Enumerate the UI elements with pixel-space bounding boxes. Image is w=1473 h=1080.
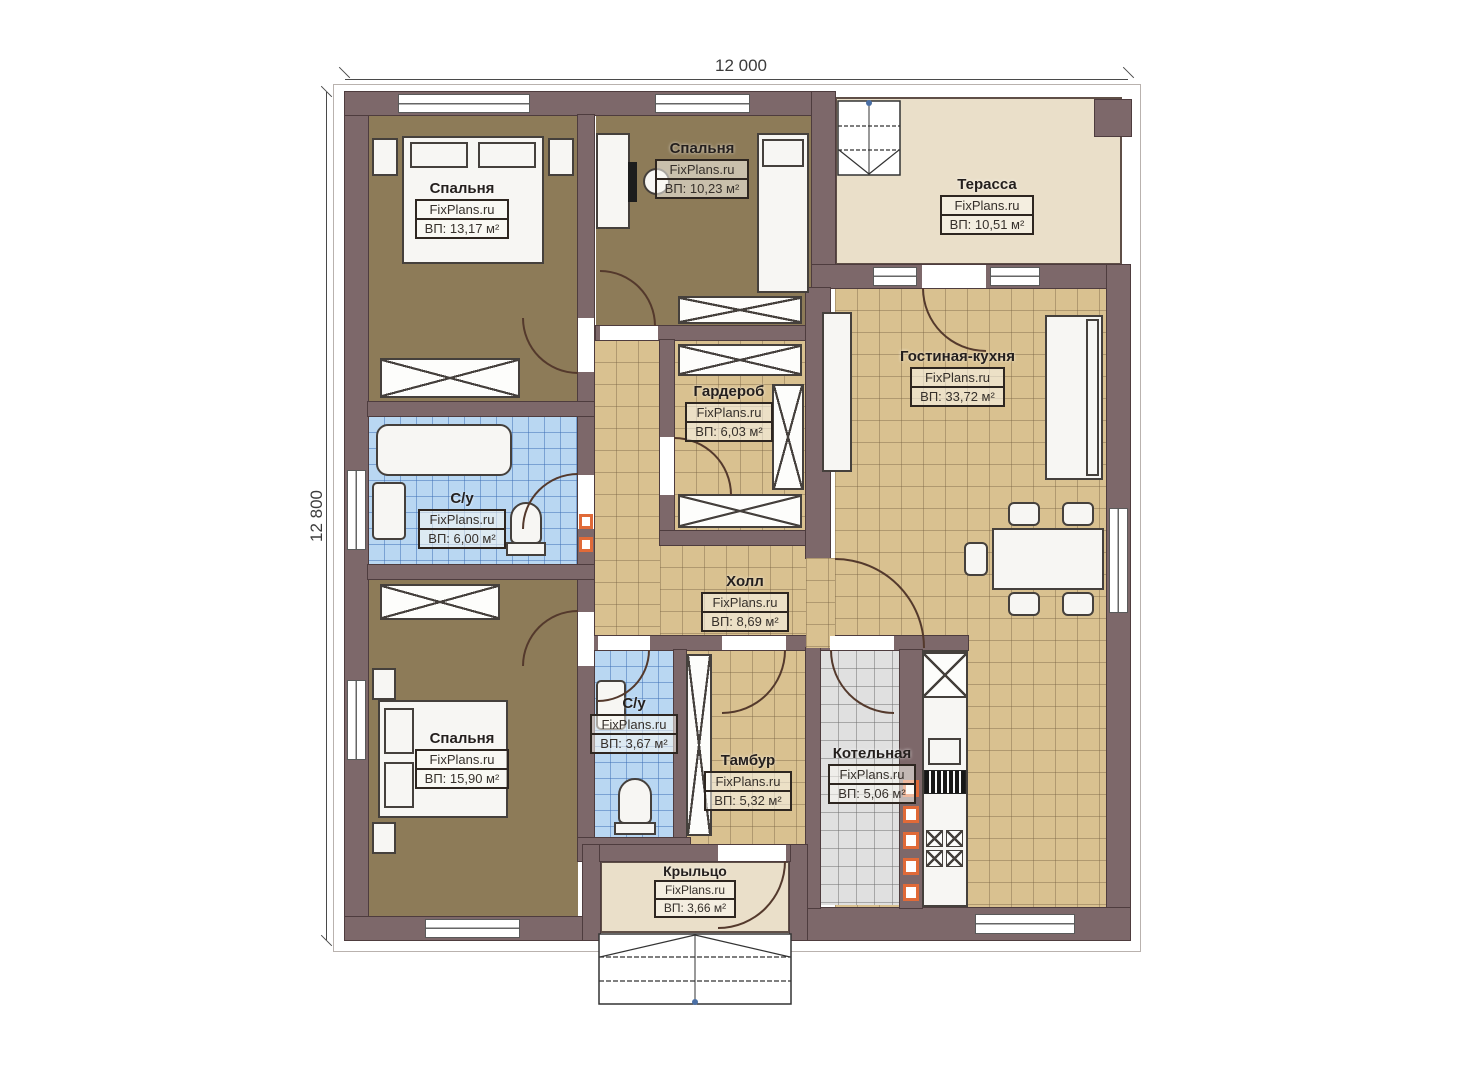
room-area: ВП: 8,69 м² bbox=[703, 613, 786, 630]
room-name: Спальня bbox=[430, 730, 495, 747]
watermark: FixPlans.ru bbox=[830, 766, 913, 785]
wall-bath1-bedroom3 bbox=[368, 565, 594, 579]
room-info-box: FixPlans.ru ВП: 10,23 м² bbox=[655, 159, 750, 199]
door-opening-bedroom-3 bbox=[578, 612, 594, 666]
room-info-box: FixPlans.ru ВП: 33,72 м² bbox=[910, 367, 1005, 407]
desk bbox=[596, 133, 630, 229]
sofa-backrest bbox=[1086, 319, 1099, 476]
chair bbox=[1008, 592, 1040, 616]
toilet-tank bbox=[614, 822, 656, 835]
room-name: Тамбур bbox=[721, 752, 775, 769]
room-name: С/у bbox=[450, 490, 473, 507]
window-terrace-right bbox=[990, 267, 1040, 286]
room-label-living-kitchen: Гостиная-кухня FixPlans.ru ВП: 33,72 м² bbox=[875, 348, 1040, 407]
room-label-bathroom-2: С/у FixPlans.ru ВП: 3,67 м² bbox=[588, 695, 680, 754]
wardrobe-cabinet bbox=[380, 358, 520, 398]
floor-plan-canvas: Спальня FixPlans.ru ВП: 13,17 м² Спальня… bbox=[0, 0, 1473, 1080]
room-label-terrace: Терасса FixPlans.ru ВП: 10,51 м² bbox=[915, 176, 1059, 235]
vent-block bbox=[903, 858, 919, 875]
pillow bbox=[410, 142, 468, 168]
door-opening-bathroom-2 bbox=[598, 636, 650, 650]
vent-block bbox=[903, 884, 919, 901]
nightstand bbox=[548, 138, 574, 176]
room-name: Терасса bbox=[957, 176, 1016, 193]
tv-cabinet bbox=[822, 312, 852, 472]
watermark: FixPlans.ru bbox=[420, 511, 503, 530]
window-bedroom-3-left bbox=[347, 680, 366, 760]
room-info-box: FixPlans.ru ВП: 3,67 м² bbox=[590, 714, 677, 754]
window-living-right bbox=[1109, 508, 1128, 613]
window-bedroom-1 bbox=[398, 94, 530, 113]
room-info-box: FixPlans.ru ВП: 15,90 м² bbox=[415, 749, 510, 789]
porch-steps bbox=[598, 933, 792, 1005]
room-area: ВП: 5,32 м² bbox=[706, 792, 789, 809]
room-label-tambour: Тамбур FixPlans.ru ВП: 5,32 м² bbox=[688, 752, 808, 811]
window-terrace-left bbox=[873, 267, 917, 286]
wall-bedroom2-terrace bbox=[812, 92, 835, 288]
room-name: Крыльцо bbox=[663, 863, 727, 879]
dimension-value-top: 12 000 bbox=[686, 56, 796, 76]
watermark: FixPlans.ru bbox=[942, 197, 1033, 216]
wardrobe-cabinet bbox=[678, 296, 802, 324]
bathtub bbox=[376, 424, 512, 476]
watermark: FixPlans.ru bbox=[912, 369, 1003, 388]
room-label-bedroom-1: Спальня FixPlans.ru ВП: 13,17 м² bbox=[388, 180, 536, 239]
room-area: ВП: 6,03 м² bbox=[687, 423, 770, 440]
dining-table bbox=[992, 528, 1104, 590]
stove-burner bbox=[946, 850, 963, 867]
room-info-box: FixPlans.ru ВП: 3,66 м² bbox=[654, 880, 736, 918]
stove-burner bbox=[926, 830, 943, 847]
nightstand bbox=[372, 138, 398, 176]
nightstand bbox=[372, 822, 396, 854]
room-area: ВП: 6,00 м² bbox=[420, 530, 503, 547]
door-opening-bedroom-1 bbox=[578, 318, 594, 372]
room-area: ВП: 15,90 м² bbox=[417, 770, 508, 787]
room-info-box: FixPlans.ru ВП: 13,17 м² bbox=[415, 199, 510, 239]
room-name: Спальня bbox=[430, 180, 495, 197]
door-opening-porch bbox=[718, 845, 786, 861]
room-name: Холл bbox=[726, 573, 764, 590]
wardrobe-cabinet bbox=[678, 494, 802, 528]
chair bbox=[1008, 502, 1040, 526]
wardrobe-cabinet bbox=[380, 584, 500, 620]
dimension-value-left: 12 800 bbox=[307, 461, 327, 571]
nightstand bbox=[372, 668, 396, 700]
room-area: ВП: 5,06 м² bbox=[830, 785, 913, 802]
room-area: ВП: 10,51 м² bbox=[942, 216, 1033, 233]
terrace-steps bbox=[837, 100, 901, 176]
watermark: FixPlans.ru bbox=[703, 594, 786, 613]
stove-burner bbox=[946, 830, 963, 847]
pillow bbox=[478, 142, 536, 168]
vent-block bbox=[579, 537, 593, 552]
stove-burner bbox=[926, 850, 943, 867]
room-label-hall: Холл FixPlans.ru ВП: 8,69 м² bbox=[665, 573, 825, 632]
chair bbox=[964, 542, 988, 576]
watermark: FixPlans.ru bbox=[417, 751, 508, 770]
room-info-box: FixPlans.ru ВП: 10,51 м² bbox=[940, 195, 1035, 235]
door-opening-tambour bbox=[722, 636, 786, 650]
room-area: ВП: 10,23 м² bbox=[657, 180, 748, 197]
room-area: ВП: 3,67 м² bbox=[592, 735, 675, 752]
kitchen-sink bbox=[928, 738, 961, 765]
room-area: ВП: 3,66 м² bbox=[656, 900, 734, 916]
room-label-wardrobe: Гардероб FixPlans.ru ВП: 6,03 м² bbox=[660, 383, 798, 442]
room-info-box: FixPlans.ru ВП: 6,03 м² bbox=[685, 402, 772, 442]
room-label-bedroom-3: Спальня FixPlans.ru ВП: 15,90 м² bbox=[388, 730, 536, 789]
room-name: Гардероб bbox=[694, 383, 765, 400]
room-name: Спальня bbox=[670, 140, 735, 157]
wall-bedroom1-bath1 bbox=[368, 402, 594, 416]
watermark: FixPlans.ru bbox=[687, 404, 770, 423]
door-opening-bedroom-2 bbox=[600, 326, 658, 340]
room-label-bedroom-2: Спальня FixPlans.ru ВП: 10,23 м² bbox=[630, 140, 774, 199]
wardrobe-cabinet bbox=[678, 344, 802, 376]
watermark: FixPlans.ru bbox=[657, 161, 748, 180]
vent-block bbox=[579, 514, 593, 529]
room-name: Гостиная-кухня bbox=[900, 348, 1015, 365]
room-info-box: FixPlans.ru ВП: 6,00 м² bbox=[418, 509, 505, 549]
vent-block bbox=[903, 832, 919, 849]
door-opening-wardrobe bbox=[660, 437, 674, 495]
window-bedroom-2 bbox=[655, 94, 750, 113]
room-label-porch: Крыльцо FixPlans.ru ВП: 3,66 м² bbox=[625, 863, 765, 918]
window-bedroom-3-bottom bbox=[425, 919, 520, 938]
room-label-bathroom-1: С/у FixPlans.ru ВП: 6,00 м² bbox=[398, 490, 526, 549]
chair bbox=[1062, 592, 1094, 616]
dimension-line-top bbox=[345, 79, 1128, 80]
room-name: С/у bbox=[622, 695, 645, 712]
room-info-box: FixPlans.ru ВП: 5,32 м² bbox=[704, 771, 791, 811]
wall-porch-left bbox=[583, 845, 600, 940]
room-area: ВП: 13,17 м² bbox=[417, 220, 508, 237]
watermark: FixPlans.ru bbox=[592, 716, 675, 735]
room-info-box: FixPlans.ru ВП: 8,69 м² bbox=[701, 592, 788, 632]
floor-hall-corridor bbox=[594, 340, 660, 650]
room-area: ВП: 33,72 м² bbox=[912, 388, 1003, 405]
wall-porch-right bbox=[790, 845, 807, 940]
window-bathroom-1 bbox=[347, 470, 366, 550]
door-opening-terrace bbox=[922, 265, 986, 288]
room-name: Котельная bbox=[833, 745, 912, 762]
toilet-bowl bbox=[618, 778, 652, 824]
vent-block bbox=[903, 806, 919, 823]
room-info-box: FixPlans.ru ВП: 5,06 м² bbox=[828, 764, 915, 804]
terrace-column bbox=[1095, 100, 1131, 136]
chair bbox=[1062, 502, 1094, 526]
watermark: FixPlans.ru bbox=[656, 882, 734, 900]
watermark: FixPlans.ru bbox=[706, 773, 789, 792]
wall-exterior-bottom-right bbox=[790, 908, 1130, 940]
wall-wardrobe-bottom bbox=[660, 531, 806, 545]
fridge bbox=[922, 652, 968, 698]
watermark: FixPlans.ru bbox=[417, 201, 508, 220]
room-label-boiler: Котельная FixPlans.ru ВП: 5,06 м² bbox=[812, 745, 932, 804]
window-kitchen bbox=[975, 914, 1075, 934]
